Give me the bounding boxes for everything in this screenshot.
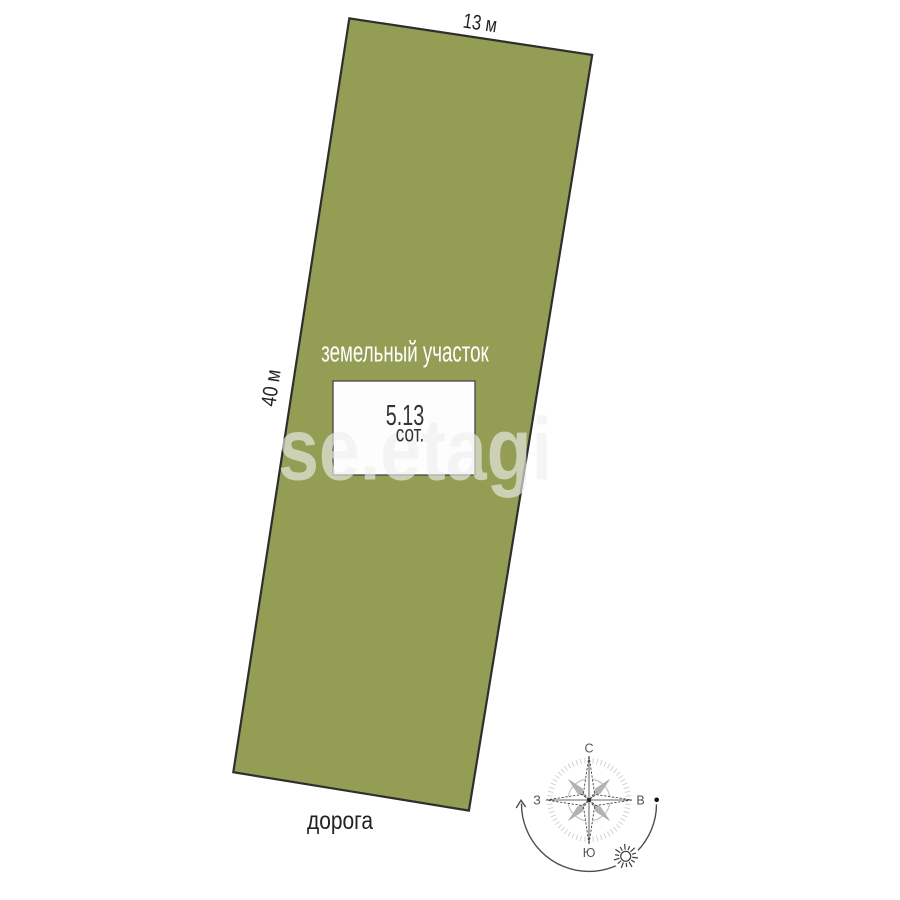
- svg-text:дорога: дорога: [307, 807, 373, 835]
- svg-text:В: В: [636, 793, 644, 807]
- svg-text:земельный участок: земельный участок: [321, 337, 489, 369]
- svg-text:Ю: Ю: [583, 846, 596, 860]
- svg-text:З: З: [533, 793, 541, 807]
- svg-text:сот.: сот.: [396, 421, 424, 447]
- svg-text:С: С: [584, 742, 593, 756]
